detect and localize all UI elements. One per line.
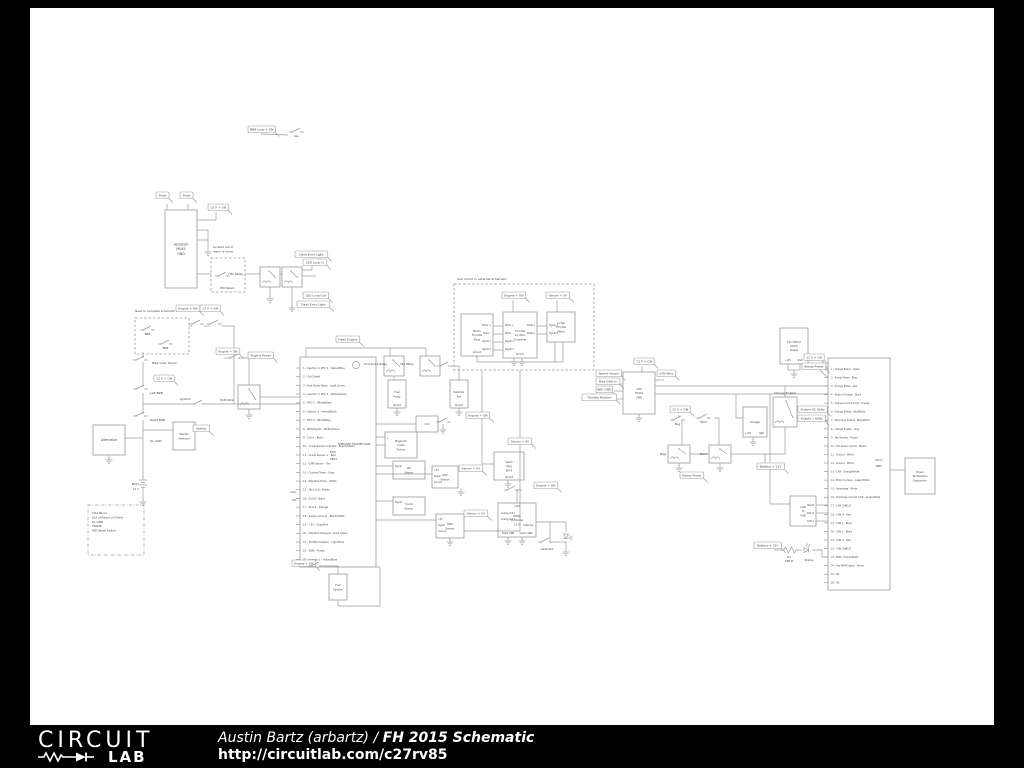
switch-blade	[439, 418, 447, 422]
switch-label: BRB	[163, 346, 169, 350]
net-flag-leader	[330, 308, 334, 312]
schematic-label: Calibrate	[523, 524, 534, 527]
bms-pin-label: 11 - Ground - White	[831, 453, 854, 456]
net-flag-label: 12 V + ON	[156, 377, 172, 381]
wire	[736, 394, 743, 418]
bms-pin-label: 25 - NC	[831, 573, 840, 576]
throttle-by-wire-controller-label: Throttle	[515, 329, 526, 333]
net-flag-leader	[675, 377, 679, 381]
bms-pin-label: 16 - Discharge Current Limit - Green/Whi…	[831, 496, 881, 499]
ecu-pin-label: 19 - +5V - Gray/Red	[303, 523, 329, 527]
rmss-controller-label: 12 V	[514, 522, 520, 526]
schematic-label: ECU	[330, 450, 336, 454]
schematic-label: Ignition	[180, 397, 191, 401]
bms-pin-label: 19 - CAN_L - Black	[831, 522, 853, 525]
net-flag-label: BRC GND	[597, 388, 612, 392]
switch-contact	[229, 357, 230, 358]
fuel-pump-label: Pump	[393, 394, 401, 398]
termination-expansion-label: Driver	[916, 470, 925, 474]
net-flag-label: Starter	[196, 427, 207, 431]
net-flag-label: Engine + ON	[294, 562, 313, 566]
net-flag-label: Flash	[159, 194, 167, 198]
switch-contact	[135, 415, 136, 416]
switch-blade	[194, 400, 202, 404]
bms-pin-label: 22 - CAN_SHIELD	[831, 547, 851, 550]
led-arrow	[806, 544, 809, 547]
hid-relay-a-contact	[269, 271, 276, 278]
net-flag-leader	[360, 343, 364, 347]
schematic-label: Ground	[505, 476, 514, 479]
wire	[714, 418, 719, 445]
led-arrow	[570, 536, 573, 539]
schematic-label: Analog Out 1	[501, 512, 516, 515]
neg-relay-coil	[671, 457, 679, 459]
can-usb-label: to	[802, 509, 805, 513]
schematic-label: Fan Relay	[400, 362, 414, 366]
schematic-label: Signal 1	[549, 324, 558, 327]
switch-blade	[292, 128, 300, 132]
net-flag-label: 12 V + ON	[202, 307, 218, 311]
author-name: Austin Bartz (arbartz)	[218, 730, 369, 746]
coil-label: Coil	[425, 422, 430, 426]
switch-contact	[209, 323, 210, 324]
schematic-label: Orion	[875, 458, 883, 462]
knock-sensor-label: Sensor	[405, 506, 415, 510]
switch-blade	[673, 416, 681, 420]
note-text: Side Panel	[92, 511, 107, 515]
schematic-label: CAN_L	[807, 520, 815, 523]
switch-label: Key	[294, 134, 299, 138]
schematic-label: Ground	[516, 353, 525, 356]
acdc-supply-label: Supply	[790, 349, 799, 352]
net-flag-label: Dash Error Light	[299, 253, 324, 257]
ecu-pin-label: 6 - Injector 2 - Yellow/Black	[303, 409, 337, 413]
switch-contact	[144, 388, 145, 389]
bms-pin-label: 2 - Ready Power - Blue	[831, 376, 858, 379]
bms-pin-label: 10 - Fan Power Control - Brown	[831, 445, 867, 448]
schematic-label: Analog Out 2	[501, 518, 516, 521]
switch-contact	[135, 388, 136, 389]
ecu-pin-label: 18 - Sensor Ground - Black/White	[303, 514, 345, 518]
clt-sensor-label: CLT	[407, 466, 412, 470]
magnetic-crank-sensor-label: Crank	[397, 443, 405, 447]
can-usb-label: CAN	[800, 505, 806, 509]
switch-contact	[238, 357, 239, 358]
spark-plug-label: EM 4	[506, 468, 513, 472]
pgm-relay-dot	[248, 388, 249, 389]
schematic-label: TBD1	[330, 457, 337, 461]
switch-contact	[193, 403, 194, 404]
net-flag-label: Engine + ON	[536, 484, 555, 488]
ecu-pin-label: 21 - Throttle Position - Light Blue	[303, 540, 345, 544]
switch-contact	[506, 489, 507, 490]
ecu-pin-label: 3 - Fuel Pump Relay - Light Green	[303, 383, 345, 387]
switch-contact	[698, 417, 699, 418]
termination-expansion-label: Expansion	[913, 478, 927, 482]
switch-blade	[210, 320, 218, 324]
ecu-pin-label: 7 - DFC 2 - White/Blue	[303, 418, 331, 422]
schematic-label: Calibrate	[541, 547, 554, 551]
bms-pin-label: 9 - Fan Monitor - Purple	[831, 436, 858, 439]
net-flag-leader	[210, 432, 214, 436]
footer-banner: CIRCUIT LAB Austin Bartz (arbartz) / FH …	[0, 725, 1024, 768]
net-flag-leader	[532, 445, 536, 449]
bms-pin-label: 3 - Charge Phase - Red	[831, 385, 858, 388]
schematic-label: BAT1	[132, 482, 139, 486]
schematic-label: +	[387, 437, 389, 440]
bosch-throttle-body-label: Body	[474, 337, 481, 341]
hid-relay-a-coil	[263, 281, 271, 283]
ecu-pin-label: 16 - Coil B - Black	[303, 496, 326, 500]
net-flag-label: Head Engine	[338, 338, 357, 342]
schematic-label: Neg	[660, 452, 666, 456]
bms-pin-label: 6 - Charge Safety - Red/White	[831, 411, 866, 414]
hid-relay-b-contact	[291, 271, 298, 278]
net-flag-label: Sensor + 5V	[462, 467, 482, 471]
bms-pin-label: 14 - Motor to Open - Green/White	[831, 479, 870, 482]
net-flag-leader	[228, 211, 232, 215]
start-relay-contact	[720, 449, 727, 454]
schematic-label: 12 V	[133, 487, 139, 491]
mat-sensor-label: MAT	[442, 473, 448, 477]
schematic-label: GND	[759, 432, 764, 435]
schematic-label: Signal 1	[505, 340, 514, 343]
bms-pin-label: 15 - Amperage - White	[831, 488, 858, 491]
throttle-pedal-label: Pedal	[557, 329, 564, 333]
note-text: reach of driver	[213, 249, 234, 253]
neg-relay	[668, 445, 690, 463]
switch-contact	[438, 421, 439, 422]
schematic-label: Pedal 2	[527, 332, 536, 335]
net-flag-leader	[328, 258, 332, 262]
switch-contact	[300, 131, 301, 132]
net-flag-leader	[174, 382, 178, 386]
switch-contact	[217, 275, 218, 276]
bms-pin-label: 4 - State of Charge - Black	[831, 394, 862, 397]
schematic-label: 390 Ω	[785, 559, 794, 563]
led-arrow	[808, 544, 811, 547]
bms-pin-label: 5 - Charge Current Limit - Orange	[831, 402, 870, 405]
hid-relay-a	[260, 267, 280, 287]
radiator-fan-label: Fan	[457, 394, 462, 398]
wire	[242, 358, 249, 385]
starter-solenoid-label: Solenoid	[178, 436, 190, 440]
net-flag-label: Enable 1 60Hz	[801, 417, 823, 421]
circuitlab-logo: CIRCUIT LAB	[38, 730, 178, 763]
note-text: Located out of	[213, 245, 234, 249]
schematic-label: Power GND	[502, 532, 515, 535]
schematic-label: +5V	[434, 469, 439, 472]
switch-contact	[142, 329, 143, 330]
net-flag-label: BRB Loop + ON	[250, 128, 273, 132]
schematic-title-line: Austin Bartz (arbartz) / FH 2015 Schemat…	[218, 730, 534, 746]
bms-pin-label: 1 - Charge Power - Green	[831, 368, 860, 371]
schematic-label: +12V	[785, 359, 792, 362]
acdc-supply-label: 12V 500mA	[787, 341, 801, 344]
net-flag-label: 12 V + ON	[636, 360, 652, 364]
throttle-by-wire-controller-label: Controller	[514, 337, 528, 341]
aerostich-module-label: GND	[177, 252, 185, 256]
schematic-label: Motor +	[505, 324, 514, 327]
ecu-pin-label: 13 - Coolant Temp - Gray	[303, 470, 335, 474]
switch-contact	[540, 541, 541, 542]
switch-contact	[144, 359, 145, 360]
net-flag-label: 12 V + ON	[210, 206, 226, 210]
schematic-label: Bike Over Travel	[152, 361, 177, 365]
switch-contact	[200, 323, 201, 324]
schematic-label: Signal 2	[549, 332, 558, 335]
net-flag-label: Battery + 12V	[757, 544, 779, 548]
schematic-label: Signal	[434, 475, 441, 478]
spark-plug-label: Spark	[505, 460, 513, 464]
throttle-pedal-label: Lodge	[557, 321, 565, 325]
schematic-label: BMS	[876, 464, 882, 468]
ecu-pin-label: 9 - Coil A - Black	[303, 436, 324, 440]
fuel-pump-relay	[384, 356, 404, 376]
switch-blade	[699, 414, 707, 418]
bms-pin-label: 8 - Charge Enable - Gray	[831, 428, 860, 431]
schematic-label: HID Reset	[220, 286, 235, 290]
throttle-by-wire-controller-label: by Wire	[515, 333, 525, 337]
switch-contact	[707, 417, 708, 418]
schematic-url[interactable]: http://circuitlab.com/c27rv85	[218, 747, 534, 763]
fuel-pump-relay-coil	[387, 370, 395, 372]
neg-relay-dot	[678, 448, 679, 449]
net-flag-label: CAN Wire	[659, 372, 673, 376]
net-flag-leader	[327, 266, 331, 270]
note-text: FRAME	[92, 524, 102, 528]
bms-pin-label: 13 - CAN - Orange/White	[831, 471, 860, 474]
ecu-pin-label: 14 - Manifold Temp - White	[303, 479, 337, 483]
bosch-throttle-body-label: Bosch	[473, 329, 481, 333]
switch-contact	[202, 403, 203, 404]
schematic-label: PGM Wire	[220, 398, 234, 402]
led-symbol	[804, 544, 810, 553]
net-flag-label: Bike GND In	[599, 380, 617, 384]
resistor-symbol	[782, 547, 798, 553]
net-flag-label: 12 V + ON	[806, 356, 822, 360]
schematic-label: Signal	[395, 465, 402, 468]
schematic-label: Status	[805, 558, 814, 562]
net-flag-label: Dash Error Light	[301, 303, 326, 307]
fuel-pump-relay-contact	[393, 360, 400, 367]
net-flag-leader	[220, 312, 224, 316]
can-usb-label: USB	[800, 513, 806, 517]
switch-contact	[310, 565, 311, 566]
switch-label: Neg	[675, 422, 681, 426]
bms-pin-label: 21 - CAN_H - Red	[831, 539, 851, 542]
schematic-label: Fuel Pump Relay	[364, 362, 387, 366]
schematic-label: Sensor GND	[519, 532, 533, 535]
charge-enable-relay-dot	[785, 400, 786, 401]
switch-contact	[151, 329, 152, 330]
start-relay-dot	[719, 448, 720, 449]
switch-contact	[447, 421, 448, 422]
spark-plug-label: Plug	[506, 464, 512, 468]
schematic-label: Signal	[438, 524, 445, 527]
schematic-label: Shield	[807, 504, 814, 507]
led-symbol	[564, 534, 573, 540]
net-flag-label: Sensor + 5V	[467, 512, 487, 516]
net-flag-leader	[654, 365, 658, 369]
switch-contact	[218, 323, 219, 324]
ecu-pin-label: 15 - Tach Out - Brown	[303, 488, 330, 492]
ecu-pin-label: 4 - Injector or DFC 3 - Yellow/Green	[303, 392, 347, 396]
ecu-pin-label: 20 - Manifold Pressure - Dark Green	[303, 531, 348, 535]
net-flag-label: Speed Sensor	[598, 372, 619, 376]
fuel-pump-label: Fuel	[394, 390, 400, 394]
net-flag-leader	[558, 489, 562, 493]
switch-contact	[319, 565, 320, 566]
alternator-label: Alternator	[101, 438, 118, 442]
switch-contact	[160, 343, 161, 344]
switch-contact	[144, 415, 145, 416]
led-triangle	[804, 548, 809, 553]
schematic-label: Right BRB	[150, 418, 165, 422]
net-flag-leader	[704, 479, 708, 483]
bms-pin-label: 23 - MPO - Purple/White	[831, 556, 859, 559]
net-flag-label: Engine + ON	[218, 350, 237, 354]
switch-label: BRB	[145, 332, 151, 336]
net-flag-label: Engine + ON	[468, 414, 487, 418]
aerostich-module-label: MUX5	[176, 247, 185, 251]
net-flag-label: Enable AC 60Hz	[801, 408, 825, 412]
schematic-label: Ground	[434, 481, 443, 484]
net-flag-label: LED Loop Out	[306, 294, 327, 298]
charge-enable-relay-contact	[786, 401, 793, 418]
switch-contact	[448, 365, 449, 366]
net-flag-leader	[490, 419, 494, 423]
net-flag-leader	[617, 401, 621, 405]
bms-pin-label: 12 - Ground - White	[831, 462, 854, 465]
hid-relay-b	[282, 267, 302, 287]
hid-relay-a-dot	[268, 270, 269, 271]
charge-enable-relay-coil	[776, 421, 784, 423]
schematic-label: Pedal 1	[527, 324, 536, 327]
net-flag-label: Engine + ON	[504, 294, 523, 298]
switch-blade	[507, 486, 515, 490]
start-relay-coil	[712, 457, 720, 459]
net-flag-label: Sensor + 5V	[511, 440, 531, 444]
note-text: Out of Reach of Driver	[92, 515, 124, 519]
net-flag-leader	[483, 472, 487, 476]
led-arrow	[569, 538, 572, 541]
switch-contact	[515, 489, 516, 490]
switch-contact	[169, 343, 170, 344]
hid-relay-b-coil	[285, 281, 293, 283]
start-relay	[709, 445, 731, 463]
net-flag-label: Sensor + 5V	[549, 294, 569, 298]
note-text: GL GND	[92, 520, 103, 524]
charge-enable-relay	[773, 397, 797, 427]
title-separator: /	[369, 730, 383, 746]
radiator-fan-label: Radiator	[454, 390, 466, 394]
schematic-label: Ground	[393, 404, 402, 407]
schematic-label: +5V	[438, 518, 443, 521]
schematic-label: HID Relay	[228, 272, 243, 276]
switch-blade	[440, 362, 448, 366]
ecu-pin-label: 8 - DFC/Digital - White/Green	[303, 427, 340, 431]
switch-contact	[439, 365, 440, 366]
schematic-label: Signal	[395, 501, 402, 504]
neg-relay-contact	[679, 449, 686, 454]
magnetic-crank-sensor-label: Sensor	[397, 447, 407, 451]
schematic-label: Start	[700, 452, 708, 456]
net-flag-label: LED Loop In	[306, 261, 324, 265]
bms-pin-label: 17 - CAN_SHIELD	[831, 505, 851, 508]
schematic-canvas: AerostichMUX5GNDAlternatorStarterSolenoi…	[30, 8, 994, 725]
switch-contact	[549, 541, 550, 542]
fuel-injector-label: Fuel	[335, 583, 341, 587]
aerostich-module-label: Aerostich	[174, 242, 189, 246]
acdc-supply-label: AC/DC	[790, 345, 798, 348]
aim-logger-label: GND	[636, 396, 642, 400]
net-flag-label: Engine Power	[251, 354, 272, 358]
schematic-label: GND	[797, 359, 802, 362]
ecu-pin-label: 22 - GND - Purple	[303, 549, 325, 553]
schematic-label: Charge Enable	[774, 391, 796, 395]
circuitlab-logo-lab: LAB	[108, 750, 147, 765]
schematic-label: Motor -	[505, 332, 513, 335]
net-flag-label: Flash	[183, 194, 191, 198]
bms-pin-label: 24 - Fan PWM Signal - Yellow	[831, 565, 864, 568]
ecu-pin-label: 5 - DFC 1 - White/Black	[303, 401, 332, 405]
schematic-label: +12V	[745, 432, 752, 435]
net-flag-leader	[690, 413, 694, 417]
bms-pin-label: 7 - Discharge Enable - Blue/White	[831, 419, 870, 422]
aim-logger-label: AIM	[636, 387, 642, 391]
starter-solenoid-label: Starter	[180, 432, 190, 436]
net-flag-leader	[274, 359, 278, 363]
note-text: Sub Circuit in external Schematic	[457, 277, 507, 281]
switch-blade	[541, 538, 549, 542]
ecu-pin-label: 12 - CAM Sensor - Tan	[303, 462, 331, 466]
termination-expansion-label: Termination	[912, 474, 928, 478]
net-flag-leader	[784, 470, 788, 474]
schematic-label: Ground	[438, 530, 447, 533]
map-sensor-label: MAP	[447, 522, 453, 526]
schematic-label: Signal 2	[505, 348, 514, 351]
ecu-pin-label: 17 - Knock - Orange	[303, 505, 328, 509]
bosch-throttle-body-label: Throttle	[472, 333, 483, 337]
led-triangle	[564, 534, 569, 539]
switch-blade	[192, 320, 200, 324]
schematic-label: Signal 1	[482, 340, 491, 343]
note-text: HID Reset Switch	[92, 529, 116, 533]
net-flag-label: Battery + 12V	[760, 465, 782, 469]
net-flag-label: 12 V + ON	[672, 408, 688, 412]
hid-relay-b-dot	[290, 270, 291, 271]
bms-pin-label: 18 - CAN_H - Red	[831, 513, 851, 516]
aim-logger-label: EVO4	[635, 391, 643, 395]
net-flag-leader	[488, 517, 492, 521]
resistor-diode-icon	[38, 751, 106, 763]
schematic-label: SHIELDED TWISTED PAIR	[338, 442, 370, 446]
net-flag-leader	[200, 312, 204, 316]
fan-relay-dot	[428, 359, 429, 360]
net-flag-label: Throttle Position	[586, 396, 612, 400]
schematic-label: CAN_H	[807, 512, 815, 515]
fan-relay-coil	[423, 370, 431, 372]
net-flag-leader	[169, 199, 173, 203]
fan-relay-contact	[429, 360, 436, 367]
switch-contact	[672, 419, 673, 420]
schematic-label: Motor +	[482, 324, 491, 327]
map-sensor-label: Sensor	[446, 526, 456, 530]
wire	[812, 550, 828, 557]
switch-label: Start	[700, 420, 708, 424]
bms-pin-label: 20 - CAN_L - Black	[831, 530, 853, 533]
